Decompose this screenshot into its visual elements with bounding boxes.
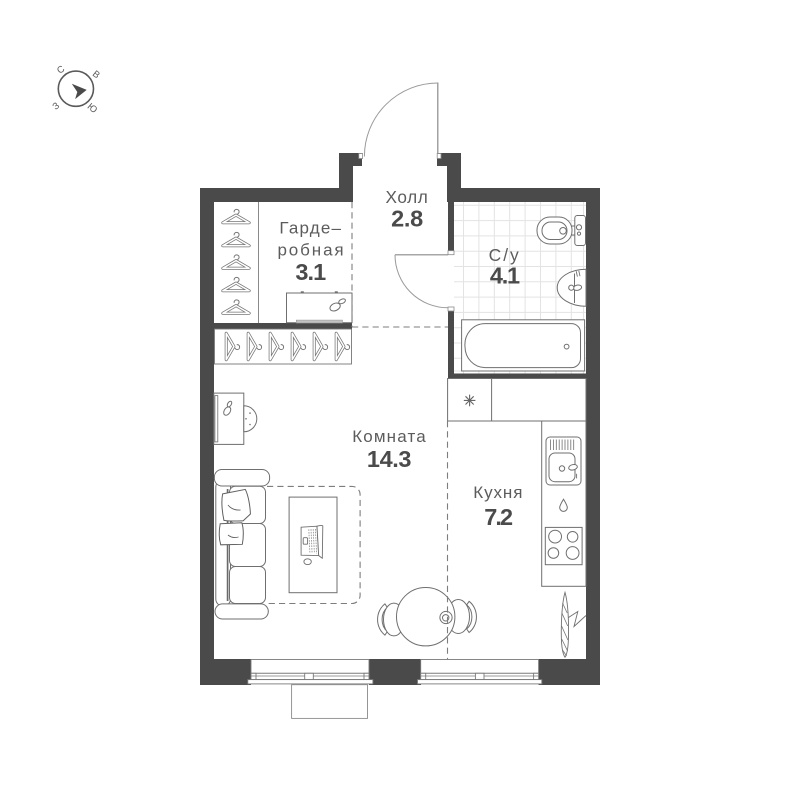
- svg-text:Комната: Комната: [352, 427, 427, 446]
- svg-text:14.3: 14.3: [367, 446, 411, 472]
- svg-text:робная: робная: [277, 240, 345, 259]
- svg-text:Кухня: Кухня: [473, 483, 523, 502]
- svg-text:7.2: 7.2: [484, 504, 513, 530]
- svg-text:2.8: 2.8: [391, 205, 423, 231]
- svg-text:3.1: 3.1: [295, 259, 326, 285]
- svg-text:Гарде–: Гарде–: [279, 218, 342, 237]
- svg-text:Холл: Холл: [386, 187, 429, 207]
- svg-text:4.1: 4.1: [490, 263, 520, 289]
